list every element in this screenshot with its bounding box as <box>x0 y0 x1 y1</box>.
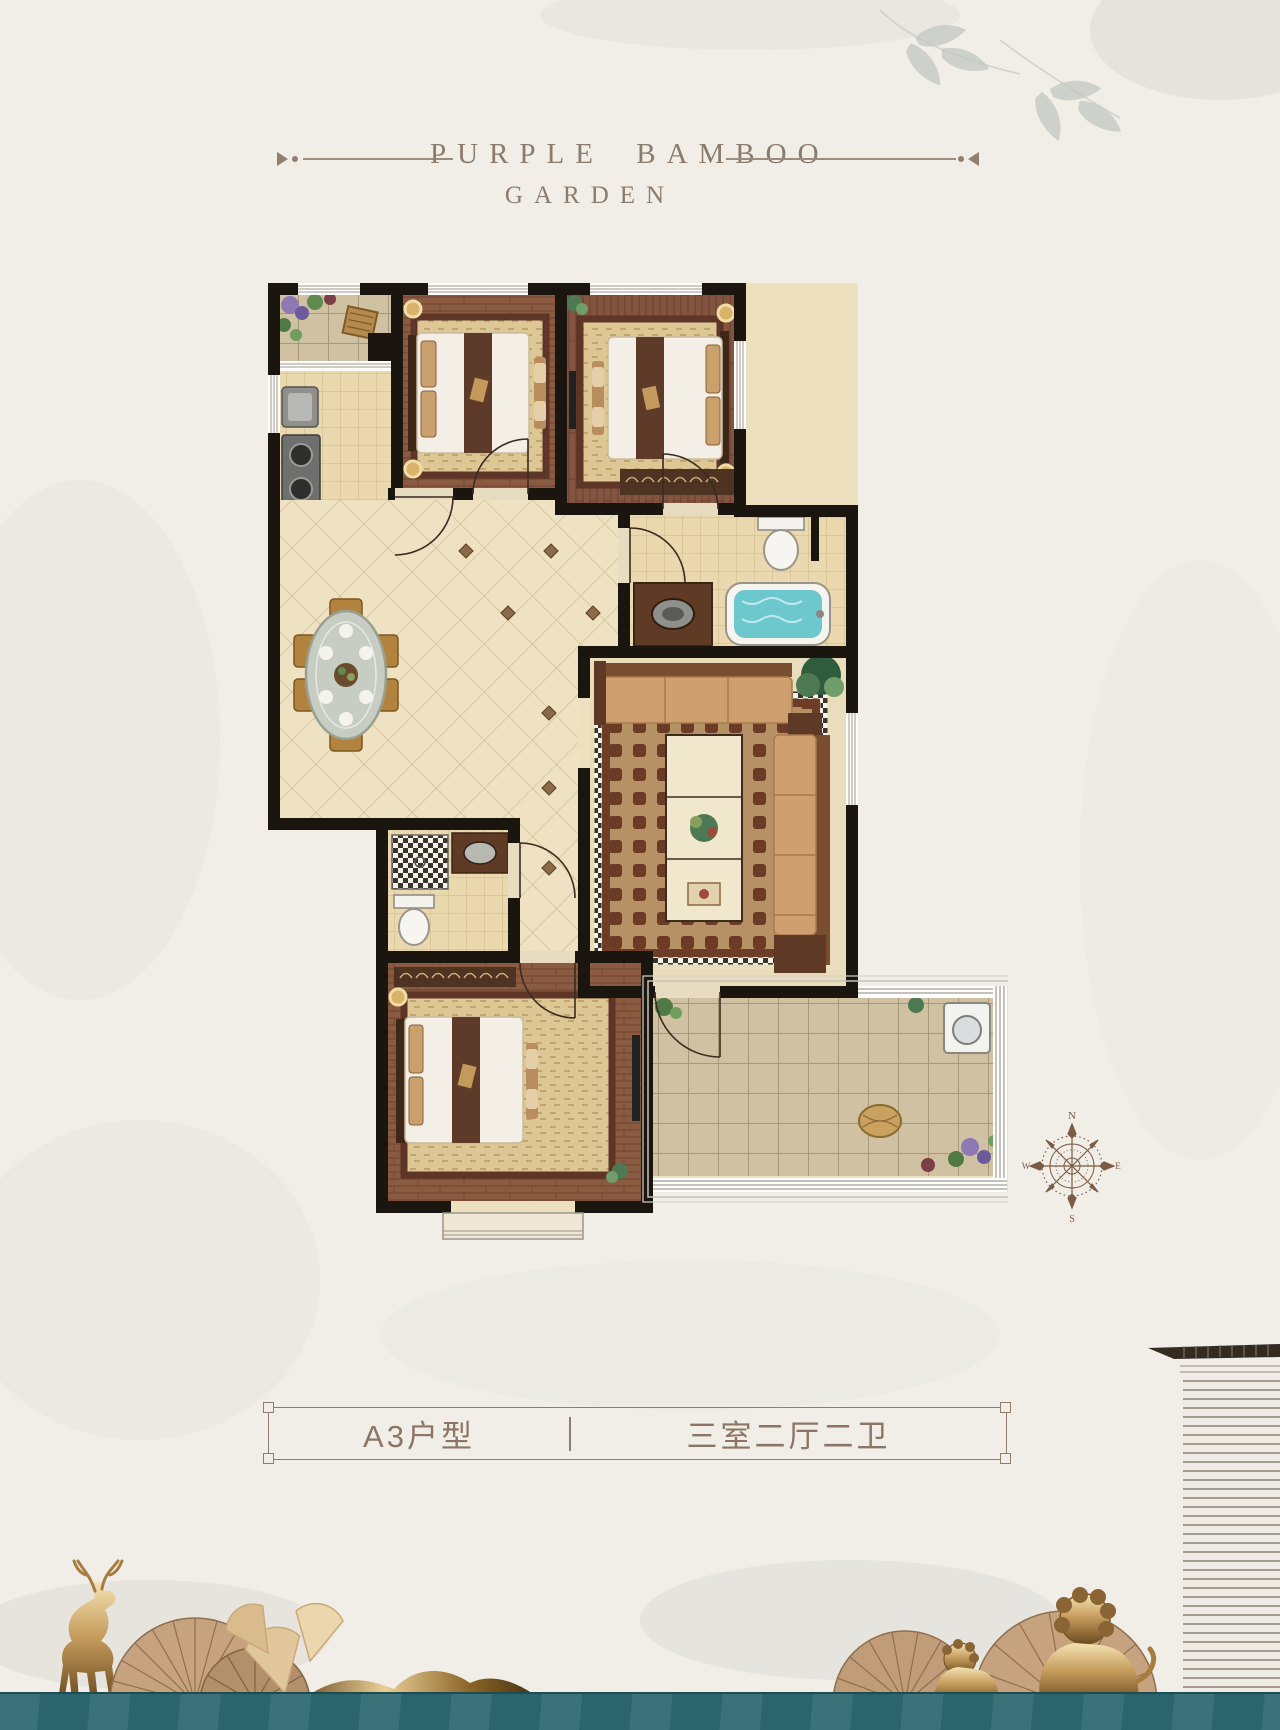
water-streaks <box>0 1694 1280 1730</box>
area-bedroom-1 <box>403 295 555 488</box>
compass-rose: N S W E <box>1022 1108 1122 1226</box>
header-left-arrow-icon <box>277 152 288 166</box>
area-living-room <box>590 655 846 986</box>
project-title-line2: GARDEN <box>430 182 750 210</box>
header-right-arrow-icon <box>968 152 979 166</box>
area-second-bathroom <box>388 830 508 951</box>
project-title-line1: PURPLE BAMBOO <box>430 138 750 171</box>
floor-plan <box>268 283 1008 1261</box>
marble-vein <box>1080 560 1280 1160</box>
compass-south-label: S <box>1069 1214 1075 1225</box>
unit-name: A3户型 <box>269 1411 569 1456</box>
poster-canvas: PURPLE BAMBOO GARDEN <box>0 0 1280 1728</box>
label-corner-mark <box>263 1453 274 1464</box>
marble-vein <box>0 480 220 1000</box>
header-right-dot-icon <box>958 156 964 162</box>
bay-window <box>443 1213 583 1239</box>
compass-east-label: E <box>1115 1161 1121 1171</box>
project-title: PURPLE BAMBOO GARDEN <box>430 138 750 210</box>
bottom-decor <box>0 1553 1280 1703</box>
marble-vein <box>380 1260 1000 1410</box>
water-band <box>0 1692 1280 1730</box>
unit-layout: 三室二厅二卫 <box>571 1411 1006 1456</box>
header-right-line <box>726 158 956 160</box>
label-corner-mark <box>1000 1402 1011 1413</box>
label-corner-mark <box>263 1402 274 1413</box>
area-balcony <box>653 997 1005 1176</box>
compass-north-label: N <box>1068 1110 1076 1122</box>
bamboo-leaves <box>820 0 1280 180</box>
area-bedroom-2 <box>566 295 734 503</box>
compass-west-label: W <box>1022 1161 1031 1171</box>
area-bedroom-3 <box>388 963 641 1201</box>
label-corner-mark <box>1000 1453 1011 1464</box>
header-left-dot-icon <box>292 156 298 162</box>
unit-label-card: A3户型 三室二厅二卫 <box>268 1407 1007 1460</box>
